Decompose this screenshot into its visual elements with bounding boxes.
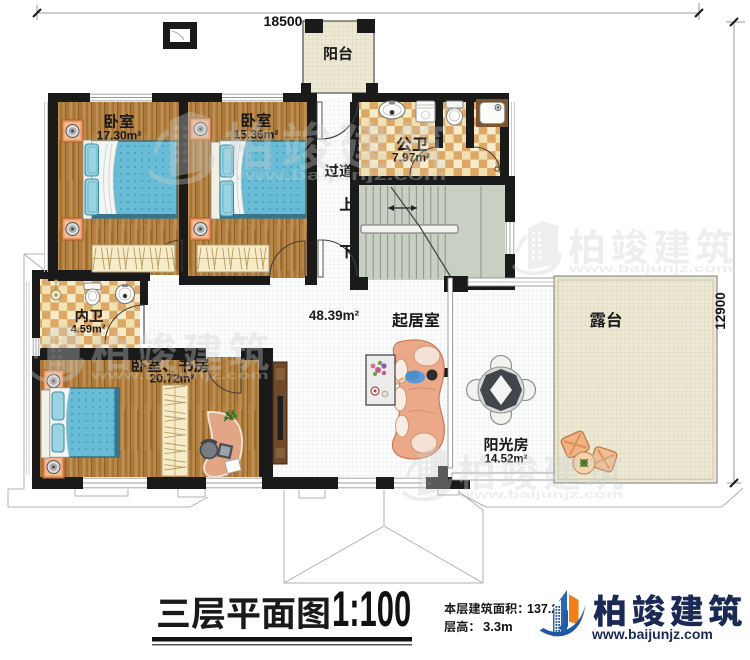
svg-text:17.30m²: 17.30m² xyxy=(97,129,142,143)
svg-text:www.baijunjz.com: www.baijunjz.com xyxy=(90,368,269,382)
svg-text:12900: 12900 xyxy=(713,292,728,330)
svg-text:48.39m²: 48.39m² xyxy=(309,308,360,323)
svg-text:3.3m: 3.3m xyxy=(483,619,513,634)
svg-text:www.baijunjz.com: www.baijunjz.com xyxy=(223,168,446,184)
svg-text:www.baijunjz.com: www.baijunjz.com xyxy=(567,263,733,275)
svg-text:www.baijunjz.com: www.baijunjz.com xyxy=(591,626,713,642)
svg-text:1:100: 1:100 xyxy=(332,580,411,636)
svg-text:www.baijunjz.com: www.baijunjz.com xyxy=(457,489,623,501)
svg-text:18500: 18500 xyxy=(264,13,303,29)
